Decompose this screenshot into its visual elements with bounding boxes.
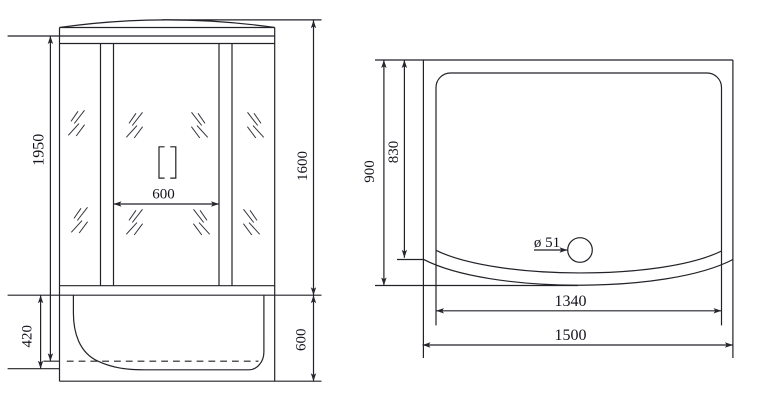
svg-text:1600: 1600 — [295, 151, 311, 181]
svg-text:1340: 1340 — [555, 293, 587, 310]
svg-text:900: 900 — [362, 160, 378, 183]
svg-text:600: 600 — [294, 328, 310, 351]
svg-text:1500: 1500 — [555, 327, 587, 344]
svg-text:830: 830 — [386, 141, 402, 164]
svg-text:ø 51: ø 51 — [534, 235, 560, 251]
svg-text:600: 600 — [152, 187, 175, 203]
svg-text:1950: 1950 — [31, 134, 48, 166]
svg-text:420: 420 — [19, 325, 35, 348]
